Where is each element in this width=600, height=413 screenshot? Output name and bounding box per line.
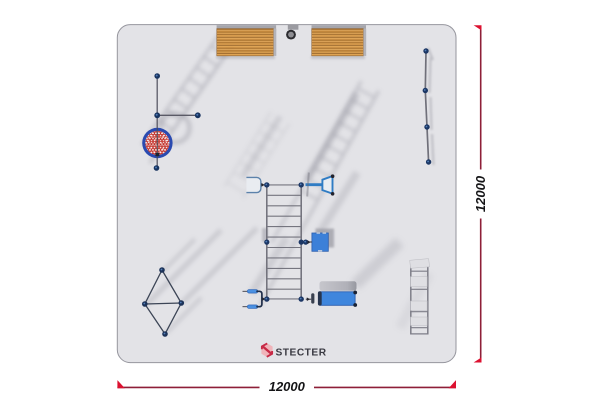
svg-text:STECTER: STECTER	[276, 347, 327, 358]
svg-text:12000: 12000	[269, 379, 306, 394]
svg-text:12000: 12000	[473, 175, 488, 212]
